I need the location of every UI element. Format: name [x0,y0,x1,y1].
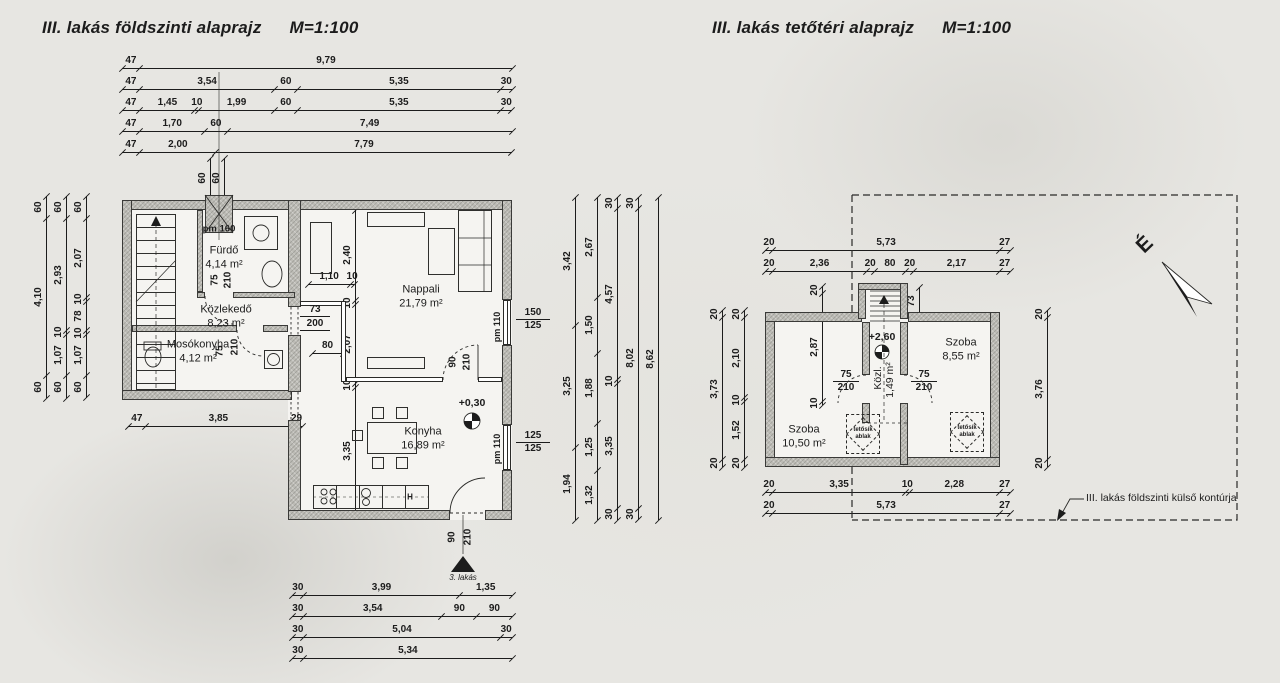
level-marker-symbol [464,413,480,429]
north-arrow [1162,262,1212,317]
entry-arrow [451,556,475,572]
shower-drain [253,225,269,241]
washbasin [262,261,282,287]
door-arc-bath [205,296,233,324]
contour-outline [852,195,1237,520]
level-marker-symbol [875,345,889,359]
toilet [144,342,161,367]
door-arc-attic-right [904,375,932,403]
door-arc-laundry [237,330,263,356]
door-arc-kitchen [443,345,478,380]
symbols-overlay [0,0,1280,683]
door-arc-attic-left [838,375,866,403]
floor-plan-sheet: III. lakás földszinti alaprajz M=1:100 I… [0,0,1280,683]
cooktop [321,489,336,504]
sofa-cushions [458,210,492,292]
entry-door [450,478,485,554]
staircase-detail [136,222,176,388]
vent-cross [205,72,233,240]
washer-drum [268,354,280,366]
contour-leader [1057,499,1084,521]
